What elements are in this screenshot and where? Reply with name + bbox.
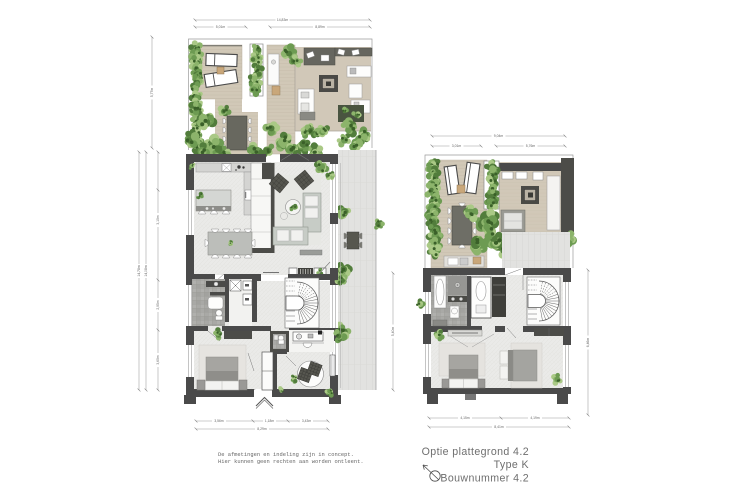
svg-text:1,18m: 1,18m [265,419,274,423]
svg-text:5,76m: 5,76m [526,144,536,148]
svg-text:5,40m: 5,40m [391,327,395,337]
svg-text:4,19m: 4,19m [530,416,539,420]
svg-text:3,56m: 3,56m [214,419,223,423]
svg-text:8,41m: 8,41m [494,425,504,429]
svg-text:14,83m: 14,83m [277,18,288,22]
svg-text:3,10m: 3,10m [156,215,160,224]
svg-text:4,15m: 4,15m [460,416,469,420]
svg-text:5,77m: 5,77m [150,88,154,98]
svg-text:Bouwnummer 4.2: Bouwnummer 4.2 [440,473,529,485]
svg-text:Type K: Type K [494,459,529,471]
svg-text:3,60m: 3,60m [156,355,160,364]
svg-text:14,08m: 14,08m [144,265,148,276]
svg-text:8,29m: 8,29m [257,427,267,431]
svg-text:2,95m: 2,95m [156,300,160,309]
svg-text:Hier kunnen geen rechten aan w: Hier kunnen geen rechten aan worden ontl… [218,459,364,465]
svg-text:8,89m: 8,89m [315,25,325,29]
svg-text:9,04m: 9,04m [494,134,504,138]
svg-text:5,01m: 5,01m [216,25,226,29]
svg-text:6,46m: 6,46m [586,338,590,348]
svg-text:De afmetingen en indeling zijn: De afmetingen en indeling zijn in concep… [218,452,354,458]
svg-text:3,01m: 3,01m [452,144,462,148]
svg-text:3,43m: 3,43m [302,419,311,423]
svg-text:Optie plattegrond 4.2: Optie plattegrond 4.2 [422,446,529,458]
svg-text:14,78m: 14,78m [137,265,141,276]
